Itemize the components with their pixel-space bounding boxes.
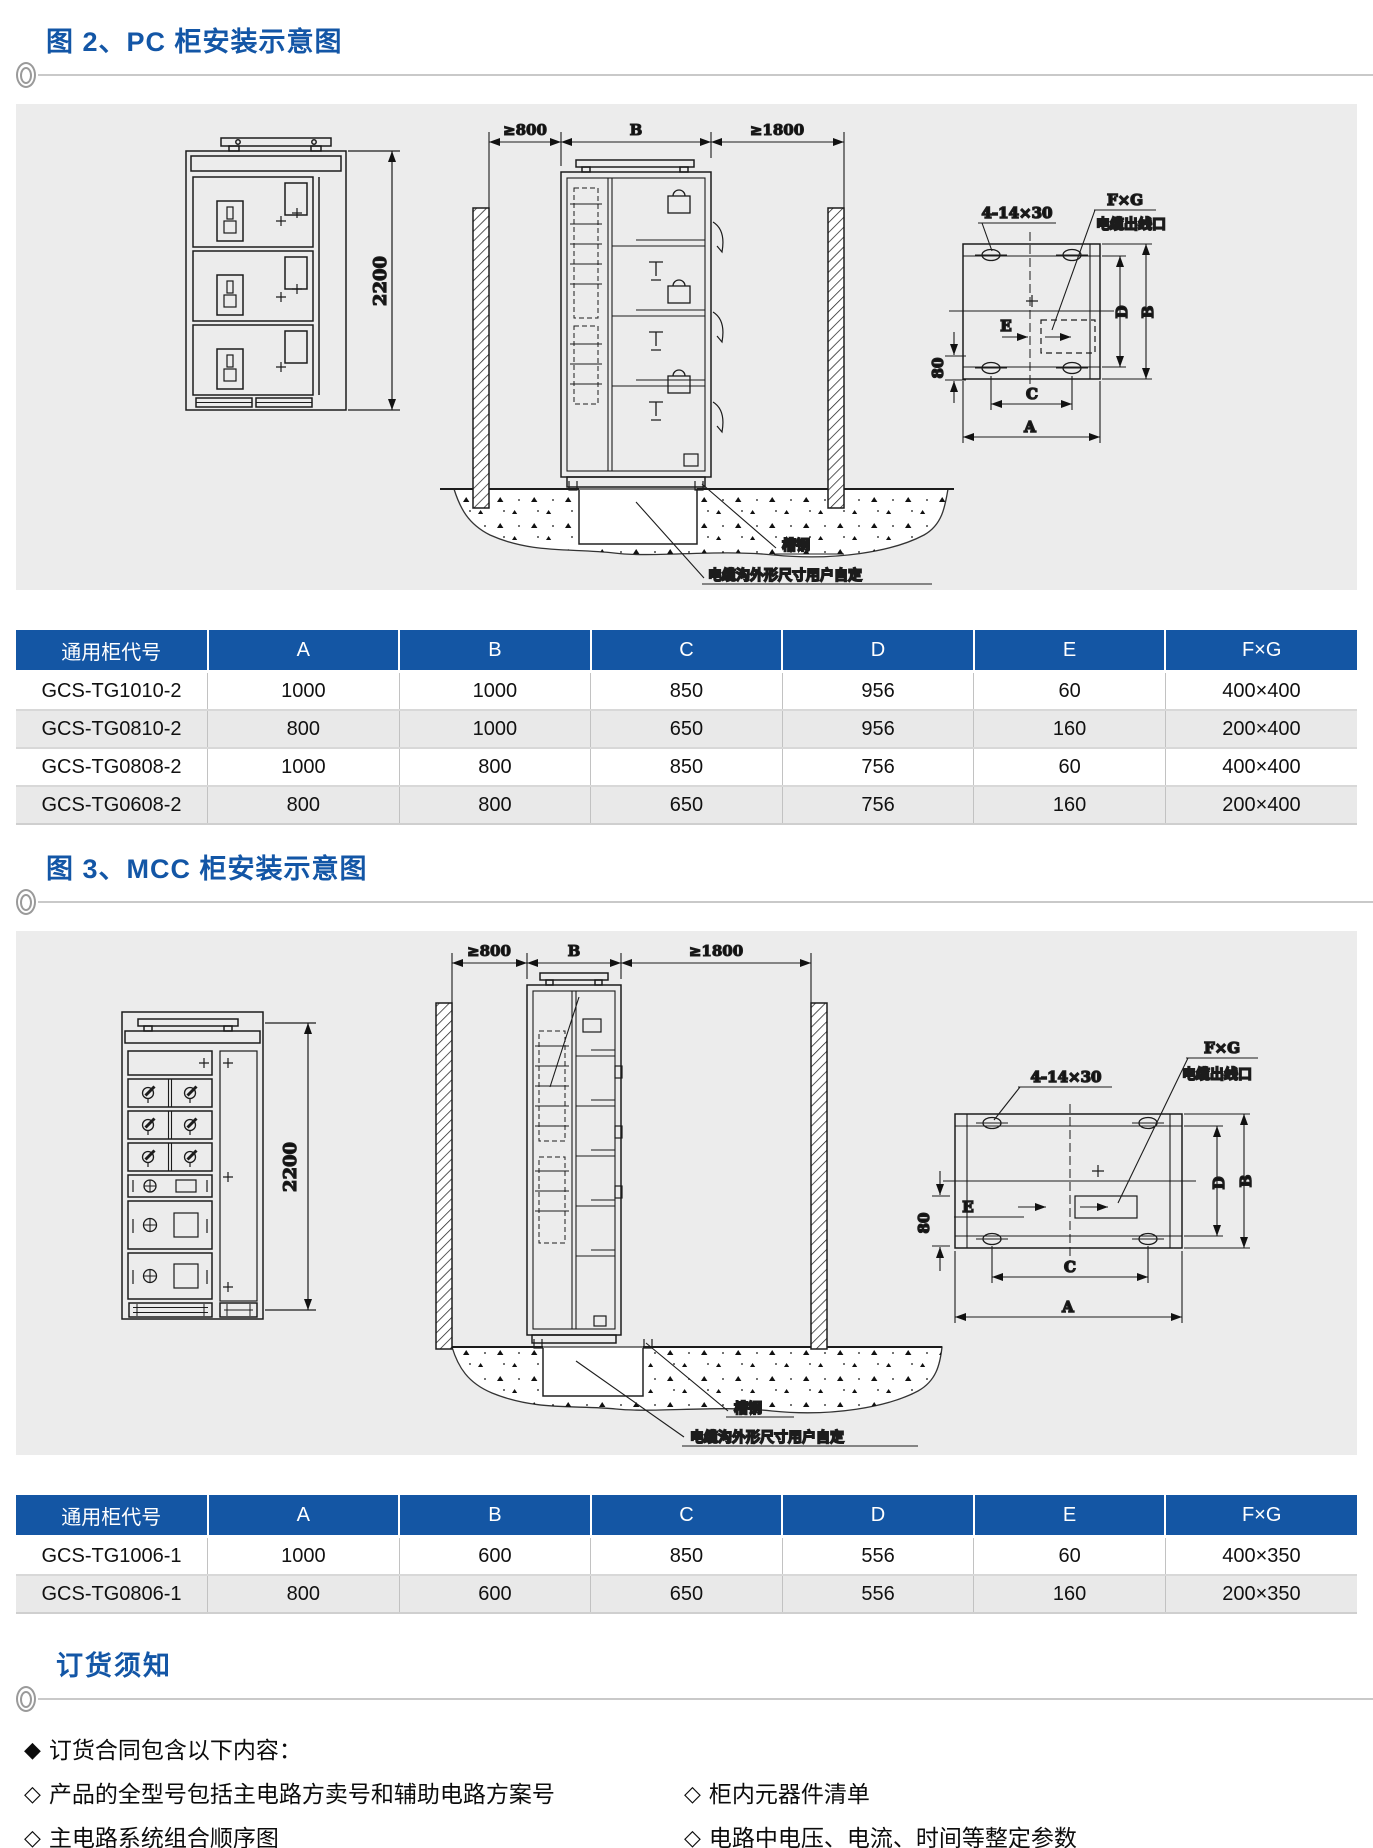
list-item: ◇ 电路中电压、电流、时间等整定参数: [684, 1822, 1349, 1848]
table-cell: 400×350: [1165, 1537, 1357, 1576]
diamond-filled-bullet: ◆: [24, 1734, 41, 1766]
ordering-section: 订货须知 ◆ 订货合同包含以下内容： ◇ 产品的全型号包括主电路方卖号和辅助电路…: [16, 1648, 1357, 1848]
b-dim-label: B: [1237, 1175, 1255, 1188]
table-cell: 200×400: [1165, 710, 1357, 748]
table-cell: 800: [208, 786, 400, 824]
table-row: GCS-TG0608-2800800650756160200×400: [16, 786, 1357, 824]
mcc-installation-drawing: 2200 ≥800 B ≥1800: [16, 931, 1357, 1455]
table-cell: 650: [591, 710, 783, 748]
mcc-section-view: ≥800 B ≥1800: [436, 942, 942, 1446]
holes-spec-label: 4-14×30: [982, 204, 1053, 222]
fg-dim-label: F×G: [1204, 1039, 1240, 1057]
wall-hatch-right: [811, 1003, 827, 1349]
table-cell: 800: [399, 786, 591, 824]
table-row: GCS-TG0810-28001000650956160200×400: [16, 710, 1357, 748]
height-dim-label: 2200: [370, 256, 391, 306]
height-dim-label: 2200: [280, 1142, 301, 1192]
ordering-title: 订货须知: [16, 1648, 1357, 1684]
breaker-units: [128, 1175, 212, 1299]
wall-hatch-right: [828, 208, 844, 508]
ordering-heading: ◆ 订货合同包含以下内容：: [24, 1734, 684, 1766]
offset-80-label: 80: [929, 358, 947, 379]
table-row: GCS-TG1010-21000100085095660400×400: [16, 672, 1357, 711]
column-header: F×G: [1165, 630, 1357, 672]
catalog-page: 图 2、PC 柜安装示意图: [0, 0, 1373, 1848]
list-item: ◇ 主电路系统组合顺序图: [24, 1822, 684, 1848]
e-dim-label: E: [1000, 317, 1011, 335]
cable-outlet-label: 电缆出线口: [1182, 1066, 1252, 1082]
b-dim-label: B: [1139, 306, 1157, 319]
left-clearance-label: ≥800: [503, 121, 547, 139]
c-dim-label: C: [1064, 1258, 1076, 1276]
pc-front-view: [186, 138, 346, 410]
mounting-holes: [975, 250, 1088, 374]
column-header: C: [591, 630, 783, 672]
channel-steel-label: 槽钢: [734, 1400, 762, 1416]
table-row: GCS-TG1006-1100060085055660400×350: [16, 1537, 1357, 1576]
column-header: E: [974, 1495, 1166, 1537]
d-dim-label: D: [1113, 305, 1131, 318]
pc-dimension-table: 通用柜代号ABCDEF×G GCS-TG1010-210001000850956…: [16, 630, 1357, 825]
column-header: C: [591, 1495, 783, 1537]
holes-spec-label: 4-14×30: [1031, 1068, 1102, 1086]
table-cell: 1000: [208, 1537, 400, 1576]
table-row: GCS-TG0806-1800600650556160200×350: [16, 1575, 1357, 1613]
figure3-title: 图 3、MCC 柜安装示意图: [16, 851, 1357, 887]
table-cell: 600: [399, 1537, 591, 1576]
diamond-bullet: ◇: [24, 1778, 41, 1810]
table-cell: GCS-TG0806-1: [16, 1575, 208, 1613]
table-cell: 800: [208, 710, 400, 748]
ordering-heading-row: ◆ 订货合同包含以下内容：: [24, 1734, 1349, 1766]
device-symbols: [668, 190, 690, 393]
column-header: D: [782, 630, 974, 672]
plus-marks: [276, 208, 302, 372]
width-dim-label: B: [630, 121, 643, 139]
table-cell: 756: [782, 748, 974, 786]
list-item-text: 主电路系统组合顺序图: [49, 1822, 279, 1848]
pc-height-dimension: 2200: [348, 151, 400, 410]
offset-80-dim: [932, 1171, 950, 1271]
cable-outlet-label: 电缆出线口: [1096, 216, 1166, 232]
diamond-bullet: ◇: [24, 1822, 41, 1848]
table-cell: 556: [782, 1575, 974, 1613]
section-separator: [16, 1686, 1373, 1712]
wall-hatch-left: [473, 208, 489, 508]
table-cell: 60: [974, 672, 1166, 711]
mcc-mounting-plan: E 80 C: [915, 1039, 1258, 1323]
ordering-list: ◆ 订货合同包含以下内容： ◇ 产品的全型号包括主电路方卖号和辅助电路方案号 ◇…: [16, 1734, 1357, 1848]
list-item: ◇ 产品的全型号包括主电路方卖号和辅助电路方案号: [24, 1778, 684, 1810]
separator-rule: [38, 1698, 1373, 1700]
wall-hatch-left: [436, 1003, 452, 1349]
column-header: B: [399, 1495, 591, 1537]
table-cell: 850: [591, 748, 783, 786]
table-cell: GCS-TG0810-2: [16, 710, 208, 748]
table-cell: 200×350: [1165, 1575, 1357, 1613]
table-header-row: 通用柜代号ABCDEF×G: [16, 630, 1357, 672]
ring-ornament-icon: [16, 62, 36, 88]
top-dimensions: ≥800 B ≥1800: [489, 121, 844, 220]
separator-rule: [38, 74, 1373, 76]
table-cell: 600: [399, 1575, 591, 1613]
d-dim-label: D: [1210, 1176, 1228, 1189]
ordering-heading-text: 订货合同包含以下内容：: [49, 1734, 302, 1766]
trench-note-label: 电缆沟外形尺寸用户自定: [708, 567, 862, 583]
table-cell: 556: [782, 1537, 974, 1576]
column-header: 通用柜代号: [16, 1495, 208, 1537]
pc-mounting-plan: E 80 C: [929, 191, 1166, 443]
pc-installation-drawing: 2200 ≥800 B ≥1800: [16, 104, 1357, 590]
table-cell: 800: [208, 1575, 400, 1613]
cable-trench: [579, 490, 697, 544]
table-cell: 400×400: [1165, 672, 1357, 711]
column-header: A: [208, 1495, 400, 1537]
section-separator: [16, 889, 1373, 915]
table-cell: 1000: [208, 672, 400, 711]
list-item-text: 电路中电压、电流、时间等整定参数: [709, 1822, 1077, 1848]
table-cell: 850: [591, 672, 783, 711]
drawer-rows: [128, 1079, 212, 1171]
table-cell: GCS-TG0808-2: [16, 748, 208, 786]
figure2-section: 图 2、PC 柜安装示意图: [16, 24, 1357, 825]
table-cell: 650: [591, 786, 783, 824]
figure3-diagram-panel: 2200 ≥800 B ≥1800: [16, 931, 1357, 1455]
diamond-bullet: ◇: [684, 1778, 701, 1810]
channel-steel-label: 槽钢: [782, 537, 810, 553]
table-cell: 756: [782, 786, 974, 824]
table-cell: 160: [974, 1575, 1166, 1613]
column-header: A: [208, 630, 400, 672]
table-cell: 850: [591, 1537, 783, 1576]
column-header: 通用柜代号: [16, 630, 208, 672]
list-item-text: 产品的全型号包括主电路方卖号和辅助电路方案号: [49, 1778, 555, 1810]
left-clearance-label: ≥800: [467, 942, 511, 960]
table-cell: 160: [974, 786, 1166, 824]
table-cell: 1000: [208, 748, 400, 786]
mcc-height-dimension: 2200: [265, 1023, 316, 1310]
right-clearance-label: ≥1800: [689, 942, 743, 960]
offset-80-label: 80: [915, 1213, 933, 1234]
a-dim-label: A: [1061, 1298, 1074, 1316]
cable-trench: [543, 1348, 643, 1396]
table-cell: 60: [974, 1537, 1166, 1576]
pc-section-view: ≥800 B ≥1800: [440, 121, 954, 584]
table-cell: 800: [399, 748, 591, 786]
list-item-text: 柜内元器件清单: [709, 1778, 870, 1810]
a-dim-label: A: [1023, 418, 1036, 436]
trench-note-label: 电缆沟外形尺寸用户自定: [690, 1429, 844, 1445]
figure2-title: 图 2、PC 柜安装示意图: [16, 24, 1357, 60]
width-dim-label: B: [568, 942, 581, 960]
separator-rule: [38, 901, 1373, 903]
ordering-row: ◇ 产品的全型号包括主电路方卖号和辅助电路方案号 ◇ 柜内元器件清单: [24, 1778, 1349, 1810]
table-cell: 400×400: [1165, 748, 1357, 786]
figure3-section: 图 3、MCC 柜安装示意图: [16, 851, 1357, 1614]
table-cell: 956: [782, 710, 974, 748]
column-header: E: [974, 630, 1166, 672]
top-dimensions: ≥800 B ≥1800: [452, 942, 811, 1015]
table-cell: GCS-TG1006-1: [16, 1537, 208, 1576]
mcc-dimension-table: 通用柜代号ABCDEF×G GCS-TG1006-110006008505566…: [16, 1495, 1357, 1614]
table-cell: 1000: [399, 672, 591, 711]
table-cell: GCS-TG0608-2: [16, 786, 208, 824]
ring-ornament-icon: [16, 889, 36, 915]
figure2-diagram-panel: 2200 ≥800 B ≥1800: [16, 104, 1357, 590]
table-cell: 650: [591, 1575, 783, 1613]
table-cell: 1000: [399, 710, 591, 748]
table-header-row: 通用柜代号ABCDEF×G: [16, 1495, 1357, 1537]
ring-ornament-icon: [16, 1686, 36, 1712]
ordering-row: ◇ 主电路系统组合顺序图 ◇ 电路中电压、电流、时间等整定参数: [24, 1822, 1349, 1848]
fg-dim-label: F×G: [1107, 191, 1143, 209]
right-clearance-label: ≥1800: [750, 121, 804, 139]
column-header: B: [399, 630, 591, 672]
diamond-bullet: ◇: [684, 1822, 701, 1848]
table-cell: 60: [974, 748, 1166, 786]
column-header: D: [782, 1495, 974, 1537]
section-separator: [16, 62, 1373, 88]
column-header: F×G: [1165, 1495, 1357, 1537]
table-row: GCS-TG0808-2100080085075660400×400: [16, 748, 1357, 786]
c-dim-label: C: [1026, 385, 1038, 403]
mcc-front-view: [122, 1012, 263, 1319]
table-cell: 160: [974, 710, 1166, 748]
list-item: ◇ 柜内元器件清单: [684, 1778, 1349, 1810]
table-cell: GCS-TG1010-2: [16, 672, 208, 711]
table-cell: 200×400: [1165, 786, 1357, 824]
e-dim-label: E: [962, 1198, 973, 1216]
table-cell: 956: [782, 672, 974, 711]
